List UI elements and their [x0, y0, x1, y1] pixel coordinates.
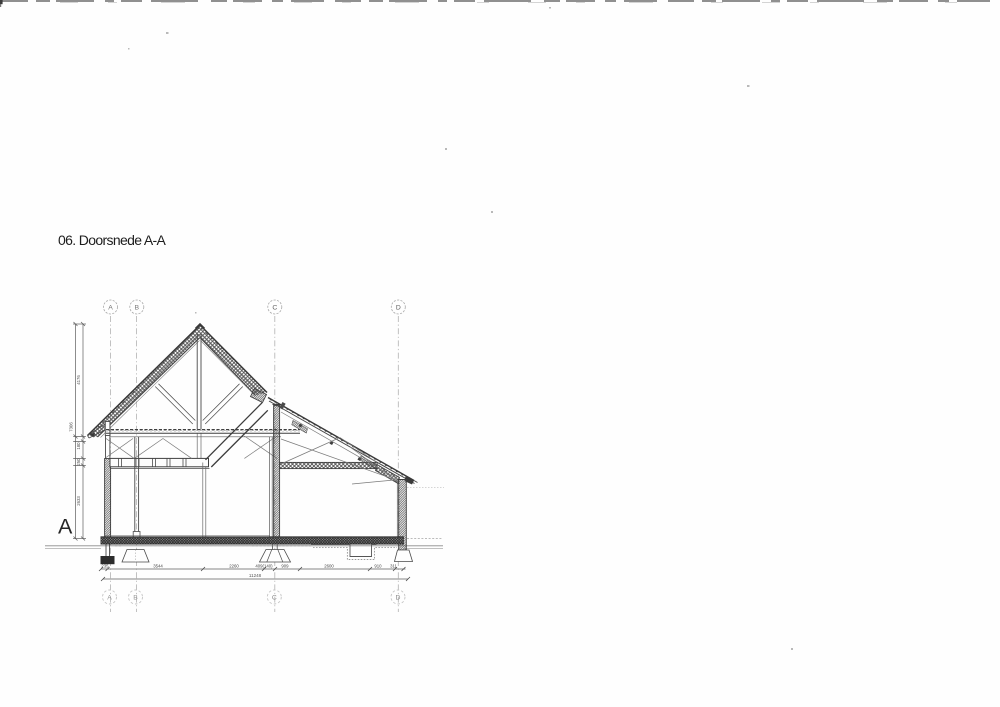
svg-text:A: A	[108, 305, 113, 312]
svg-text:180: 180	[76, 442, 81, 450]
svg-text:7306: 7306	[69, 422, 74, 432]
svg-text:B: B	[133, 595, 138, 602]
svg-text:11248: 11248	[249, 573, 262, 578]
svg-text:A: A	[107, 595, 112, 602]
svg-text:D: D	[396, 305, 401, 312]
svg-text:409(140): 409(140)	[255, 564, 273, 569]
svg-text:C: C	[272, 305, 277, 312]
svg-text:910: 910	[374, 564, 382, 569]
svg-text:06. Doorsnede A-A: 06. Doorsnede A-A	[58, 232, 167, 248]
svg-text:C: C	[272, 595, 277, 602]
svg-text:909: 909	[281, 564, 289, 569]
svg-text:B: B	[135, 305, 140, 312]
svg-text:D: D	[396, 595, 401, 602]
svg-text:235: 235	[101, 564, 109, 569]
svg-text:250: 250	[76, 458, 81, 466]
svg-text:4176: 4176	[76, 375, 81, 385]
svg-text:2633: 2633	[76, 496, 81, 506]
svg-text:2260: 2260	[229, 564, 239, 569]
svg-text:3544: 3544	[153, 564, 163, 569]
svg-text:A: A	[58, 515, 73, 539]
svg-text:311: 311	[390, 564, 397, 569]
svg-text:2600: 2600	[324, 564, 334, 569]
